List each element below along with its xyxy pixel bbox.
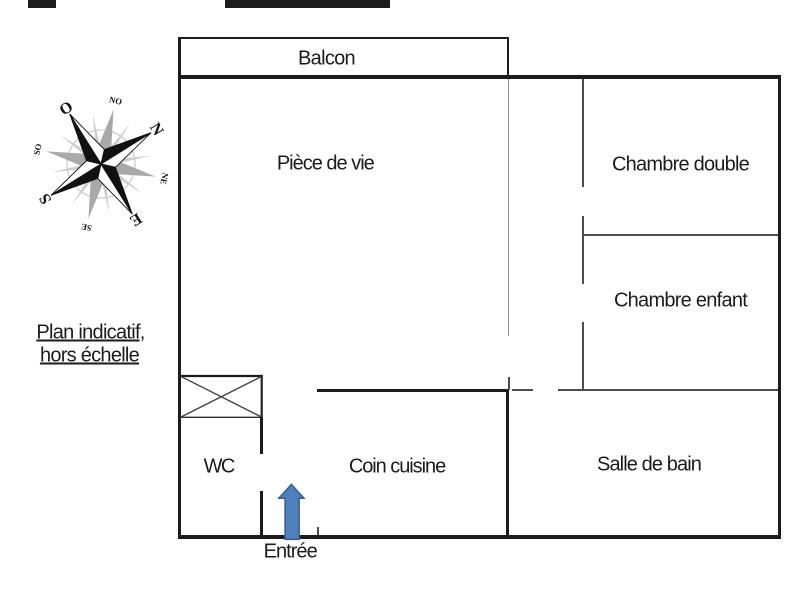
svg-text:NO: NO: [108, 94, 123, 107]
svg-text:E: E: [127, 209, 145, 229]
svg-text:O: O: [57, 98, 77, 119]
svg-text:SE: SE: [80, 221, 93, 233]
svg-text:NE: NE: [158, 172, 170, 186]
svg-text:N: N: [146, 120, 167, 139]
svg-text:S: S: [36, 190, 55, 207]
svg-text:SO: SO: [31, 142, 43, 156]
